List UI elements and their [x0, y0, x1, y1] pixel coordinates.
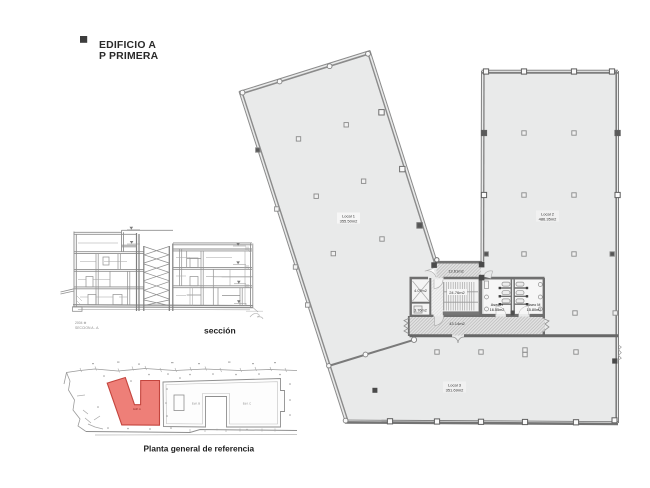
svg-text:13.61m2: 13.61m2: [448, 269, 464, 274]
svg-text:Edif. A: Edif. A: [133, 407, 141, 411]
svg-text:15.80m2: 15.80m2: [527, 308, 542, 312]
svg-text:SECCION A - A.: SECCION A - A.: [75, 326, 99, 330]
svg-text:24.76m2: 24.76m2: [449, 290, 465, 295]
svg-text:sección: sección: [204, 326, 236, 336]
svg-text:16.55m2: 16.55m2: [490, 308, 505, 312]
svg-text:2004 ⊕: 2004 ⊕: [75, 321, 86, 325]
svg-text:351.69m2: 351.69m2: [446, 388, 465, 393]
svg-text:43.14m2: 43.14m2: [449, 321, 465, 326]
svg-text:Aseo M: Aseo M: [528, 303, 541, 307]
svg-text:486.35m2: 486.35m2: [539, 217, 558, 222]
svg-text:Edif. B: Edif. B: [192, 402, 200, 406]
svg-text:355.50m2: 355.50m2: [340, 219, 359, 224]
svg-text:P PRIMERA: P PRIMERA: [99, 51, 159, 62]
svg-text:Aseo H: Aseo H: [491, 303, 504, 307]
svg-text:Planta general de referencia: Planta general de referencia: [144, 444, 255, 454]
svg-text:4.07m2: 4.07m2: [414, 289, 427, 293]
svg-text:3.76m2: 3.76m2: [414, 309, 427, 313]
svg-text:Edif. C: Edif. C: [243, 402, 251, 406]
svg-text:EDIFICIO A: EDIFICIO A: [99, 40, 156, 51]
